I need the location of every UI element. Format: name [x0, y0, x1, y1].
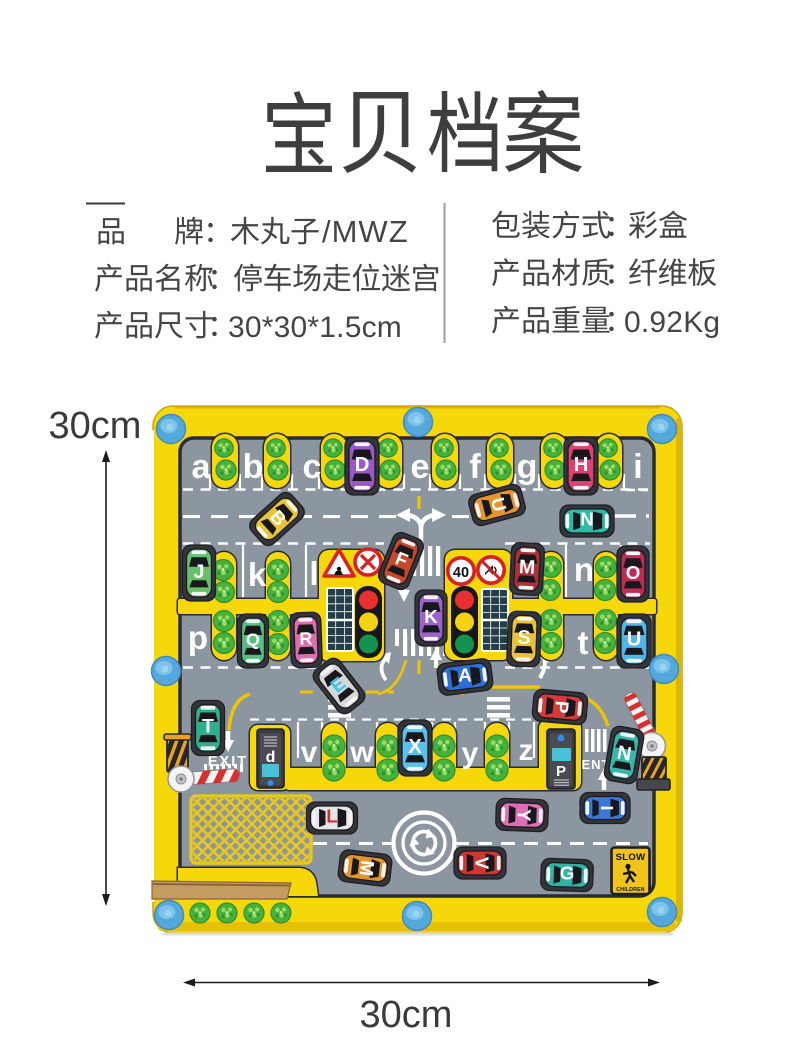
svg-text:30cm: 30cm	[360, 994, 453, 1036]
svg-text:30*30*1.5cm: 30*30*1.5cm	[228, 311, 402, 344]
svg-text:k: k	[248, 556, 267, 593]
svg-text:L: L	[326, 805, 337, 826]
svg-text:b: b	[243, 448, 264, 486]
svg-text:v: v	[301, 736, 318, 769]
svg-text:Y: Y	[513, 808, 534, 822]
svg-text:P: P	[551, 700, 573, 714]
svg-text:R: R	[299, 628, 313, 648]
svg-text:P: P	[556, 763, 566, 780]
svg-text:O: O	[626, 562, 641, 583]
svg-text:D: D	[355, 454, 370, 476]
svg-text:T: T	[202, 716, 214, 738]
svg-text:0.92Kg: 0.92Kg	[624, 306, 720, 339]
svg-text:V: V	[472, 857, 493, 870]
svg-text:l: l	[309, 555, 318, 592]
svg-text:X: X	[408, 736, 422, 758]
svg-text:w: w	[349, 736, 374, 769]
svg-text:SLOW: SLOW	[616, 852, 646, 863]
svg-text:CHILDREN: CHILDREN	[616, 887, 644, 893]
svg-text:N: N	[580, 509, 594, 530]
svg-text:S: S	[517, 626, 531, 648]
svg-text:y: y	[462, 737, 479, 770]
svg-text:G: G	[560, 862, 575, 883]
svg-text:/MWZ: /MWZ	[322, 214, 409, 249]
svg-text:g: g	[517, 448, 538, 486]
svg-text:30cm: 30cm	[49, 405, 142, 447]
svg-text:e: e	[411, 448, 430, 486]
svg-text:M: M	[356, 859, 379, 877]
svg-text:z: z	[519, 734, 534, 767]
svg-text:f: f	[469, 448, 481, 486]
svg-text:n: n	[574, 551, 594, 588]
svg-text:M: M	[518, 556, 535, 579]
svg-text:EXIT: EXIT	[208, 754, 248, 770]
svg-text:p: p	[188, 619, 208, 656]
svg-text:U: U	[627, 629, 642, 651]
svg-text:A: A	[458, 665, 472, 686]
svg-text:40: 40	[453, 565, 469, 581]
svg-text:K: K	[424, 606, 438, 627]
svg-text:H: H	[574, 454, 589, 476]
svg-text:J: J	[194, 561, 205, 583]
svg-text:a: a	[192, 448, 212, 486]
svg-text:d: d	[266, 749, 276, 766]
svg-text:t: t	[578, 624, 589, 661]
svg-text:i: i	[633, 448, 642, 486]
svg-text:Q: Q	[246, 630, 260, 650]
svg-text:I: I	[597, 806, 617, 811]
svg-text:c: c	[303, 448, 322, 486]
